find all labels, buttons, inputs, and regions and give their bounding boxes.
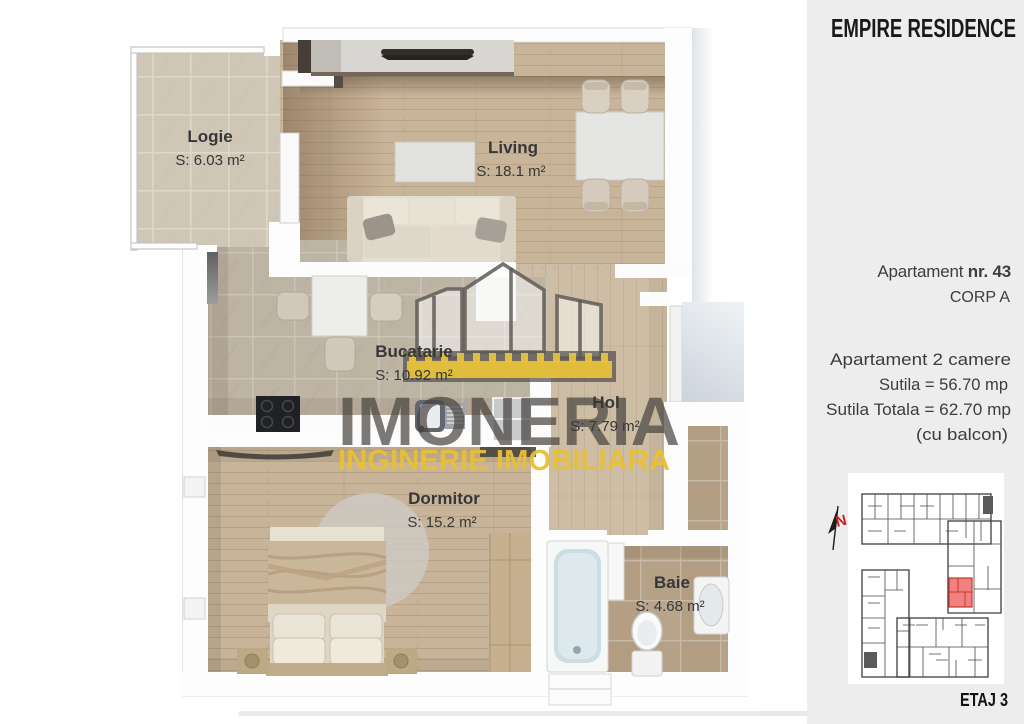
svg-text:Apartament nr. 43: Apartament nr. 43 <box>877 262 1011 281</box>
svg-text:Sutila = 56.70 mp: Sutila = 56.70 mp <box>879 375 1008 394</box>
svg-text:Apartament 2 camere: Apartament 2 camere <box>830 350 1011 369</box>
svg-text:Sutila Totala = 62.70 mp: Sutila Totala = 62.70 mp <box>826 400 1011 419</box>
svg-text:ETAJ 3: ETAJ 3 <box>960 690 1008 710</box>
svg-text:CORP A: CORP A <box>950 289 1011 306</box>
svg-text:EMPIRE RESIDENCE: EMPIRE RESIDENCE <box>831 13 1016 43</box>
svg-text:(cu balcon): (cu balcon) <box>916 425 1008 444</box>
